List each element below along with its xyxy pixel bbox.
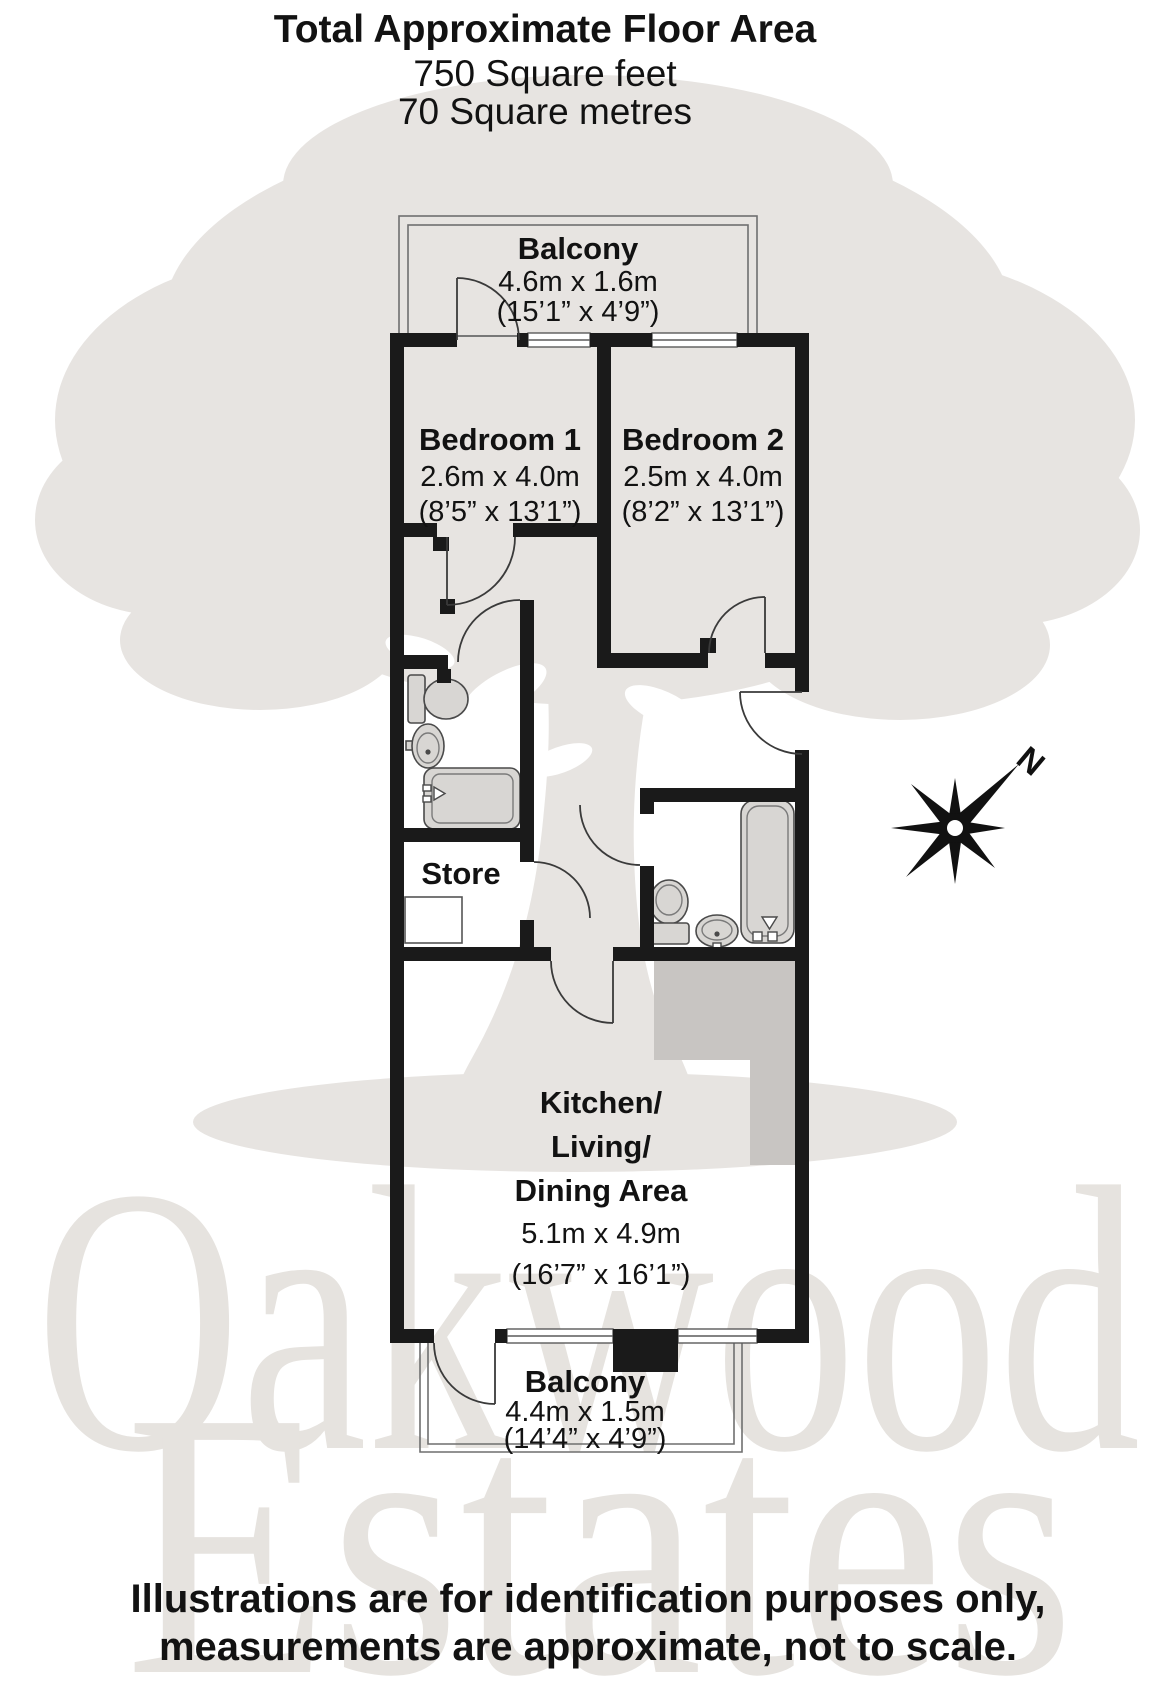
room-size-metric: 2.6m x 4.0m [420,461,580,493]
room-name-line2: Living/ [551,1129,651,1164]
balcony-top-label: Balcony 4.6m x 1.6m (15’1” x 4’9”) [497,231,660,328]
room-size-imperial: (16’7” x 16’1”) [512,1259,691,1291]
compass-icon: N [891,739,1052,884]
window-bedroom1 [528,333,590,347]
room-name-line3: Dining Area [515,1173,689,1208]
wc-sink-icon [406,724,444,768]
room-name: Balcony [518,231,639,266]
bathroom-toilet-icon [650,880,689,944]
room-size-imperial: (8’5” x 13’1”) [419,496,582,528]
room-name: Store [421,856,500,891]
north-label: N [1010,739,1052,783]
room-size-imperial: (15’1” x 4’9”) [497,296,660,328]
room-name: Bedroom 1 [419,422,581,457]
room-size-metric: 5.1m x 4.9m [521,1218,681,1250]
balcony-bottom-label: Balcony 4.4m x 1.5m (14’4” x 4’9”) [504,1364,667,1455]
room-size-imperial: (14’4” x 4’9”) [504,1423,667,1455]
store-cupboard [405,897,462,943]
room-name: Bedroom 2 [622,422,784,457]
bedroom2-label: Bedroom 2 2.5m x 4.0m (8’2” x 13’1”) [622,422,785,528]
room-size-metric: 4.6m x 1.6m [498,266,658,298]
room-name: Balcony [525,1364,646,1399]
disclaimer-line1: Illustrations are for identification pur… [131,1577,1046,1621]
window-bedroom2 [652,333,737,347]
bedroom1-label: Bedroom 1 2.6m x 4.0m (8’5” x 13’1”) [419,422,582,528]
shower-icon [423,768,520,829]
floorplan-page: Oakwood Estates [0,0,1176,1688]
page-title: Total Approximate Floor Area [274,8,817,51]
bathroom-sink-icon [696,915,738,950]
window-kitchen-left [507,1329,613,1343]
room-size-imperial: (8’2” x 13’1”) [622,496,785,528]
room-size-metric: 2.5m x 4.0m [623,461,783,493]
area-feet: 750 Square feet [413,53,677,94]
disclaimer-line2: measurements are approximate, not to sca… [159,1625,1017,1669]
store-label: Store [421,856,500,891]
room-name-line1: Kitchen/ [540,1085,663,1120]
window-kitchen-right [678,1329,757,1343]
bathtub-icon [741,800,794,943]
area-metres: 70 Square metres [398,91,692,132]
